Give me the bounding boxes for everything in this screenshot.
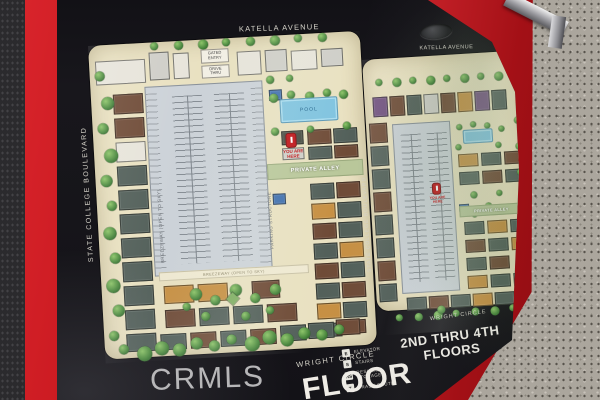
building-block	[339, 241, 364, 258]
building-block	[118, 189, 149, 211]
building-block	[113, 93, 144, 115]
building-block	[310, 182, 335, 199]
tree-icon	[209, 340, 221, 352]
screw-rivet	[419, 22, 452, 40]
building-block	[337, 201, 362, 218]
building-block	[369, 123, 388, 144]
building-block	[165, 308, 196, 328]
tree-icon	[490, 306, 500, 316]
building-block	[123, 285, 154, 307]
you-are-here-label: YOU ARE HERE	[280, 148, 307, 160]
building-block	[466, 257, 487, 271]
building-block	[494, 291, 515, 305]
building-block	[148, 52, 170, 81]
building-block	[376, 237, 395, 258]
swimming-pool: POOL	[279, 96, 338, 123]
you-are-here-marker-upper	[433, 183, 441, 193]
building-block	[316, 282, 341, 299]
building-block	[321, 48, 344, 67]
building-block	[375, 214, 394, 235]
building-block	[317, 302, 342, 319]
pool-label: POOL	[300, 106, 318, 113]
you-are-here-marker	[286, 134, 296, 147]
wall-edge-strip	[0, 0, 27, 400]
building-block	[291, 49, 318, 70]
building-block	[122, 261, 153, 283]
parking-aisle	[427, 132, 456, 281]
building-block	[487, 219, 508, 233]
street-katella-avenue-upper: KATELLA AVENUE	[401, 44, 491, 52]
building-block	[474, 90, 490, 111]
building-block	[379, 283, 398, 302]
building-block	[440, 92, 456, 113]
building-block	[406, 94, 422, 115]
gated-entry-label: GATED ENTRY	[200, 48, 229, 63]
building-block	[458, 153, 479, 167]
tree-icon	[437, 305, 445, 313]
crmls-watermark: CRMLS	[149, 360, 265, 398]
building-block	[119, 213, 150, 235]
you-are-here-label-upper: YOU ARE HERE	[425, 195, 449, 204]
tree-icon	[137, 346, 153, 362]
building-block	[451, 294, 472, 308]
building-block	[313, 242, 338, 259]
building-block	[488, 237, 509, 251]
parking-structure: PARKING STRUCTURE BREEZEWAY (OPEN TO SKY…	[144, 80, 272, 276]
building-block	[465, 239, 486, 253]
tree-icon	[155, 341, 170, 356]
building-block	[114, 117, 145, 139]
building-block	[311, 202, 336, 219]
building-block	[121, 237, 152, 259]
building-block	[115, 141, 146, 163]
building-block	[343, 301, 368, 318]
parking-aisle	[214, 92, 253, 261]
building-block	[472, 292, 493, 306]
building-block	[237, 50, 262, 75]
building-block	[377, 260, 396, 281]
building-block	[338, 221, 363, 238]
building-block	[490, 273, 511, 287]
building-block	[489, 255, 510, 269]
building-block	[273, 193, 287, 205]
building-block	[457, 91, 473, 112]
entry-labels: GATED ENTRY DRIVE THRU	[200, 48, 230, 79]
parking-structure-upper	[392, 121, 460, 294]
drive-thru-label: DRIVE THRU	[201, 64, 230, 79]
building-block	[423, 93, 439, 114]
building-block	[459, 171, 480, 185]
metal-bracket	[506, 0, 584, 50]
building-block	[482, 170, 503, 184]
tree-icon	[396, 314, 403, 321]
building-block	[173, 52, 190, 79]
building-block	[491, 89, 507, 110]
building-block	[481, 152, 502, 166]
building-block	[308, 146, 333, 160]
building-block	[372, 97, 388, 118]
building-block	[389, 95, 405, 116]
elevator-icon: E	[342, 349, 351, 358]
building-block	[467, 275, 488, 289]
tree-icon	[415, 312, 423, 320]
building-block	[372, 169, 391, 190]
building-block	[334, 144, 359, 158]
building-block	[117, 165, 148, 187]
first-floor-plan: PARKING STRUCTURE BREEZEWAY (OPEN TO SKY…	[88, 31, 377, 364]
upper-floors-plan: PRIVATE ALLEY YOU ARE HERE KATELLA AVENU…	[362, 50, 537, 335]
swimming-pool-upper	[462, 128, 493, 144]
building-block	[464, 221, 485, 235]
building-block	[315, 262, 340, 279]
building-block	[340, 261, 365, 278]
parking-aisle	[172, 95, 211, 264]
building-block	[265, 49, 288, 72]
building-block	[373, 191, 392, 212]
tree-icon	[280, 333, 294, 347]
building-block	[312, 222, 337, 239]
building-block	[370, 146, 389, 167]
building-block	[125, 309, 156, 331]
tree-icon	[334, 324, 345, 335]
parking-aisle	[401, 134, 430, 283]
building-block	[342, 281, 367, 298]
building-block	[336, 181, 361, 198]
building-block	[407, 296, 428, 310]
photo-of-site-map-sign: PARKING STRUCTURE BREEZEWAY (OPEN TO SKY…	[0, 0, 600, 400]
